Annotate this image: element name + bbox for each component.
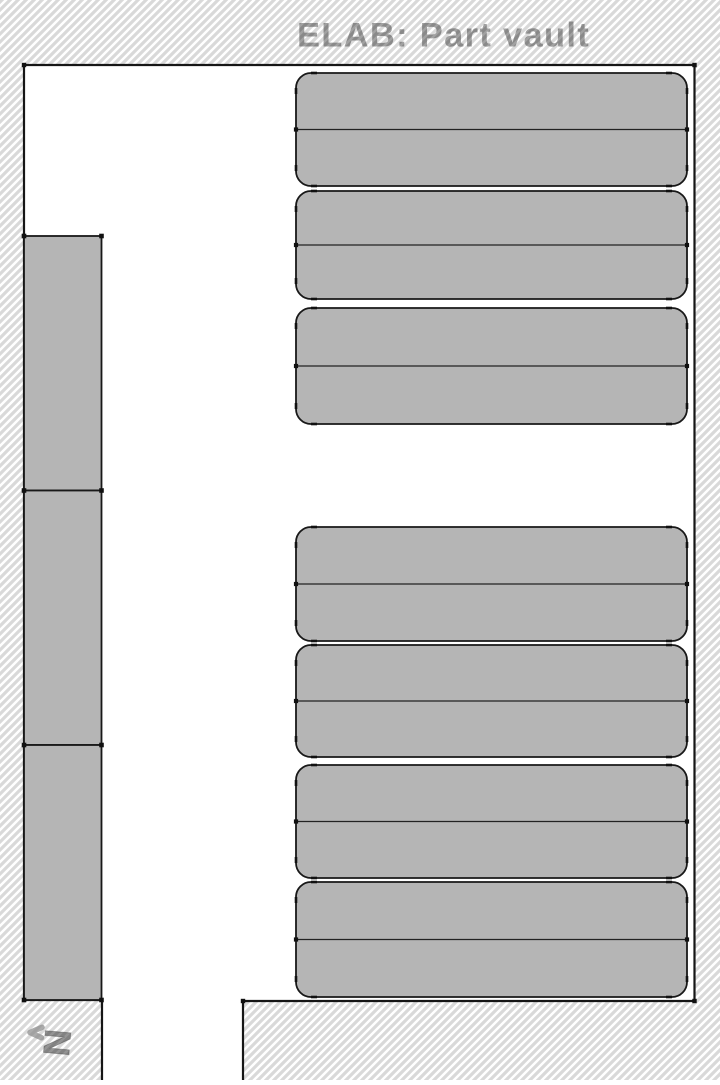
svg-text:N: N (35, 1028, 78, 1058)
svg-text:ELAB: Part vault: ELAB: Part vault (297, 17, 590, 55)
